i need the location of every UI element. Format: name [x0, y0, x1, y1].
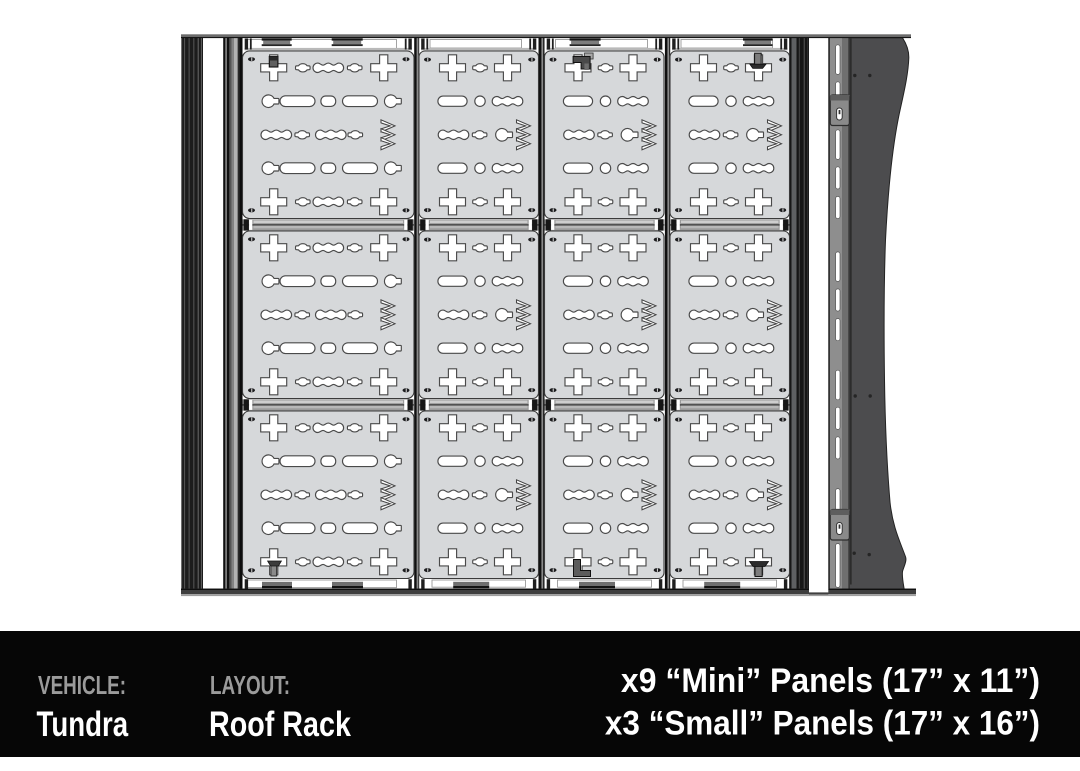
svg-text:x9 “Mini” Panels (17” x 11”): x9 “Mini” Panels (17” x 11”) — [621, 661, 1040, 699]
svg-text:LAYOUT:: LAYOUT: — [210, 671, 290, 699]
svg-text:x3 “Small” Panels (17” x 16”): x3 “Small” Panels (17” x 16”) — [605, 703, 1040, 741]
svg-text:VEHICLE:: VEHICLE: — [38, 671, 126, 699]
svg-text:Roof Rack: Roof Rack — [209, 704, 351, 743]
svg-text:Tundra: Tundra — [37, 704, 129, 744]
